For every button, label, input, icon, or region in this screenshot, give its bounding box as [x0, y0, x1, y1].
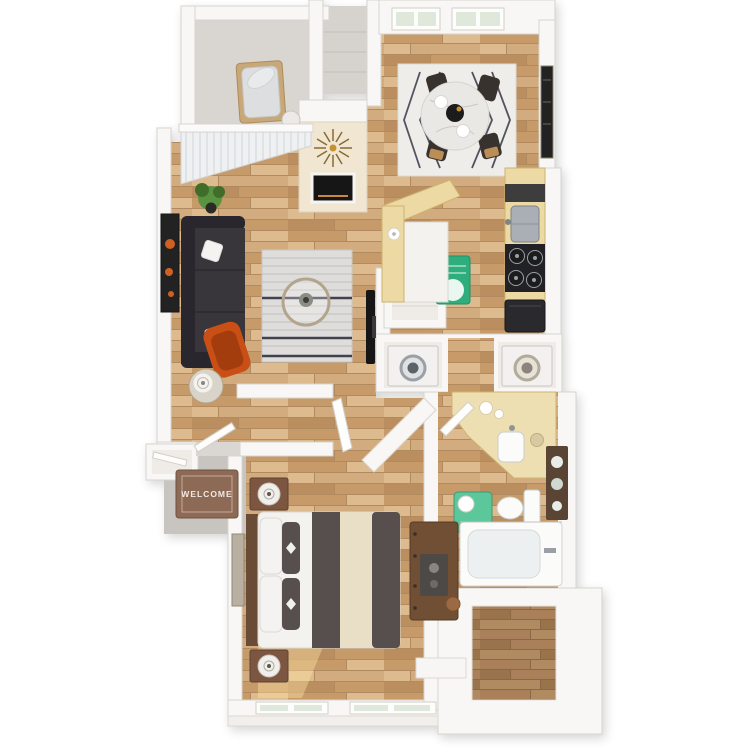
window-pane	[418, 12, 436, 26]
closet-floor	[472, 606, 556, 700]
vanity-sink	[498, 432, 524, 462]
centerpiece-accent	[457, 107, 462, 112]
bedroom-wall-art	[232, 534, 244, 606]
window-pane	[354, 705, 388, 711]
dresser-dish	[446, 597, 460, 611]
trash-can	[458, 496, 474, 512]
window-pane	[456, 12, 476, 26]
floating-shelf	[416, 658, 466, 678]
dresser-knob	[413, 606, 417, 610]
window-pane	[396, 12, 414, 26]
duvet-foot-band	[372, 512, 400, 648]
lamp-finial	[267, 664, 271, 668]
floorplan-stage: WELCOME	[0, 0, 750, 750]
shaft-left-wall	[309, 0, 323, 106]
paper-towel-core	[392, 232, 396, 236]
welcome-mat-text: WELCOME	[181, 489, 232, 499]
floorplan: WELCOME	[146, 0, 602, 734]
dryer-drum	[522, 363, 533, 374]
window-pane	[480, 12, 500, 26]
bedroom-sill-band	[228, 716, 438, 726]
dresser-tray	[420, 554, 448, 596]
laundry-hall-floor	[448, 338, 494, 398]
tray-item	[430, 580, 438, 588]
lamp-finial	[267, 492, 271, 496]
lounge-chair	[236, 60, 286, 123]
bathtub-basin	[468, 530, 540, 578]
plant-leaves	[213, 186, 225, 198]
dresser-knob	[413, 554, 417, 558]
window-pane	[260, 705, 288, 711]
stair-shaft-floor	[323, 6, 367, 94]
counter-dark-section	[505, 184, 545, 202]
starburst-center	[330, 145, 337, 152]
art-accent	[165, 239, 175, 249]
bar-cabinet	[404, 222, 448, 302]
burner-center	[514, 276, 518, 280]
pillow-white	[260, 576, 282, 632]
washer-drum	[408, 363, 419, 374]
burner-center	[532, 278, 536, 282]
shelf-item	[551, 478, 563, 490]
kitchen-faucet	[505, 219, 511, 225]
vanity-tray	[531, 434, 544, 447]
sink-faucet	[509, 425, 515, 431]
burner-center	[533, 256, 537, 260]
plant-leaves	[195, 183, 209, 197]
balcony-left-wall	[181, 6, 195, 140]
lamp-finial	[201, 381, 205, 385]
sofa-backrest	[181, 222, 195, 364]
burner-center	[515, 254, 519, 258]
shelf-item	[551, 456, 563, 468]
breakfast-bar-side	[382, 206, 404, 302]
vanity-dish	[495, 410, 504, 419]
balcony-top-wall	[181, 6, 329, 20]
art-accent	[168, 291, 174, 297]
kitchen-right-wall	[545, 168, 561, 348]
dresser-knob	[413, 532, 417, 536]
table-centerpiece	[446, 104, 464, 122]
living-wall-art	[161, 214, 179, 312]
tub-faucet	[544, 548, 556, 553]
refrigerator	[505, 300, 545, 332]
place-setting	[457, 125, 470, 138]
art-accent	[165, 268, 173, 276]
dresser-knob	[413, 584, 417, 588]
window-pane	[294, 705, 322, 711]
fireplace-mantel	[299, 100, 367, 122]
walkin-closet	[472, 606, 556, 700]
window-pane	[394, 705, 430, 711]
shelf-item	[552, 501, 562, 511]
floorplan-svg: WELCOME	[0, 0, 750, 750]
pillow-white	[260, 518, 282, 574]
duvet-dark-band	[312, 512, 340, 648]
toilet-bowl	[497, 497, 523, 519]
door-track	[179, 124, 313, 132]
toilet-tank	[524, 490, 540, 524]
place-setting	[435, 96, 448, 109]
fireplace-insert	[312, 174, 354, 202]
plant-pot	[206, 203, 217, 214]
tray-item	[429, 563, 439, 573]
coffee-table-decor-center	[303, 297, 309, 303]
tv-stand	[372, 316, 376, 338]
duvet-cream-runner	[340, 512, 372, 648]
headboard	[246, 514, 258, 646]
vanity-dish	[480, 402, 493, 415]
entry-front-wall-right	[240, 442, 333, 456]
living-hall-wall	[237, 384, 333, 398]
